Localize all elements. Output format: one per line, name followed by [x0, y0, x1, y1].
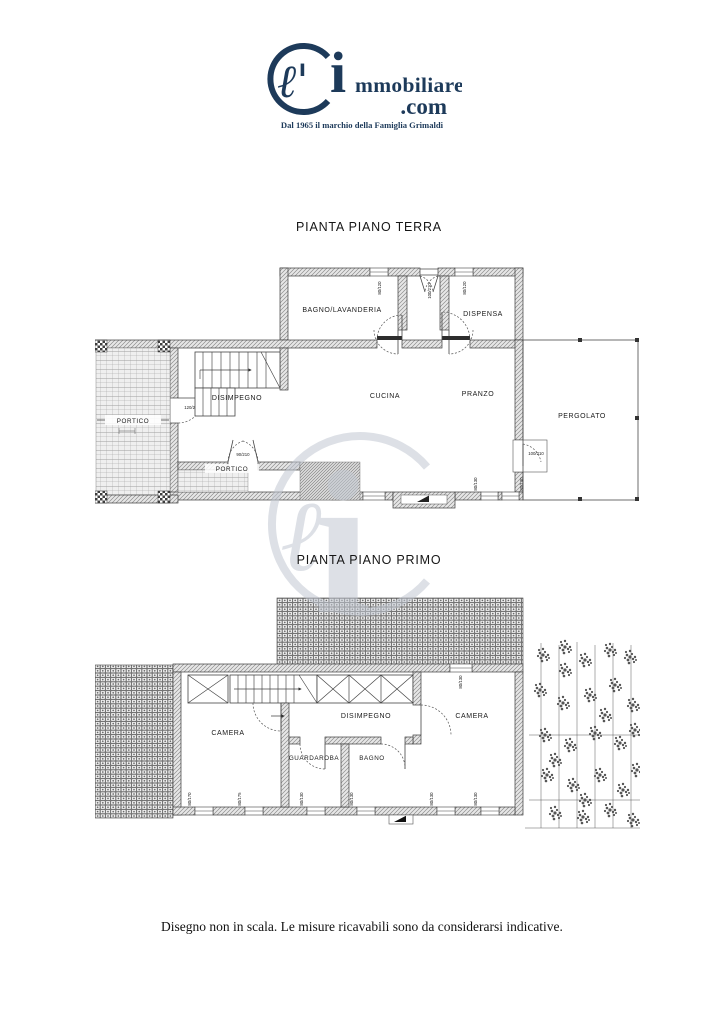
room-label-portico-bottom: PORTICO [216, 466, 248, 473]
room-label-camera-left: CAMERA [211, 730, 244, 737]
window [370, 268, 388, 276]
roof-top [277, 598, 523, 664]
measure-label: 80/130 [473, 792, 478, 806]
floorplan-document-page: ℓ' i mmobiliare .com Dal 1965 il marchio… [0, 0, 724, 1024]
roof-left [95, 665, 173, 818]
first-floor-title: PIANTA PIANO PRIMO [0, 553, 724, 567]
measure-label: 80/175 [237, 792, 242, 806]
window [307, 807, 325, 815]
entry-step-marker [389, 815, 413, 824]
pergolato-area: PERGOLATO [523, 338, 639, 501]
room-label-disimpegno-first: DISIMPEGNO [341, 713, 391, 720]
agency-logo: ℓ' i mmobiliare .com Dal 1965 il marchio… [262, 40, 462, 134]
room-label-cucina: CUCINA [370, 393, 400, 400]
measure-label: 80/130 [458, 675, 463, 689]
window [245, 807, 263, 815]
logo-tagline: Dal 1965 il marchio della Famiglia Grima… [281, 120, 444, 130]
room-label-dispensa: DISPENSA [463, 311, 503, 318]
room-label-bagno-lavanderia: BAGNO/LAVANDERIA [302, 307, 381, 314]
measure-label: 90/210 [236, 452, 250, 457]
staircase [230, 675, 317, 703]
room-label-disimpegno: DISIMPEGNO [212, 395, 262, 402]
ground-floor-plan: BAGNO/LAVANDERIA DISPENSA 80/120 100/210… [95, 248, 640, 512]
measure-label: 80/120 [462, 281, 467, 295]
measure-label: 80/130 [429, 792, 434, 806]
first-floor-body: 80/130 80/170 80/175 80/130 80/130 80/13… [173, 664, 523, 824]
measure-label: 80/130 [299, 792, 304, 806]
window [481, 807, 499, 815]
room-label-pergolato: PERGOLATO [558, 413, 606, 420]
room-label-pranzo: PRANZO [462, 391, 494, 398]
room-label-bagno: BAGNO [359, 755, 385, 762]
window [502, 492, 519, 500]
wardrobe-row [317, 675, 413, 703]
window [455, 268, 473, 276]
measure-label: 100/210 [427, 283, 432, 299]
window [481, 492, 498, 500]
window [363, 492, 385, 500]
measure-label: 80/130 [349, 792, 354, 806]
staircase [195, 352, 280, 416]
room-label-portico-left: PORTICO [117, 418, 149, 425]
window [195, 807, 213, 815]
camera-left-door [253, 703, 284, 731]
window [450, 664, 472, 672]
logo-big-i: i [330, 40, 346, 105]
wardrobe-box [188, 675, 228, 703]
measure-label: 80/170 [187, 792, 192, 806]
measure-label: 100/210 [528, 451, 544, 456]
first-floor-plan: 80/130 80/170 80/175 80/130 80/130 80/13… [95, 585, 640, 835]
logo-script-l: ℓ' [277, 54, 309, 108]
bottom-portico: 90/210 PORTICO [178, 440, 360, 500]
ground-floor-title: PIANTA PIANO TERRA [0, 220, 724, 234]
logo-tld: .com [400, 94, 447, 119]
room-label-camera-right: CAMERA [455, 713, 488, 720]
porch-step [393, 492, 455, 508]
window [357, 807, 375, 815]
pergola-vegetation [525, 640, 640, 828]
measure-label: 80/120 [377, 281, 382, 295]
room-label-guardaroba: GUARDAROBA [289, 755, 340, 762]
portico-left: PORTICO [95, 340, 178, 503]
window [437, 807, 455, 815]
pranzo-door [513, 440, 547, 472]
camera-right-door [421, 705, 451, 735]
measure-label: 80/130 [473, 477, 478, 491]
scale-disclaimer: Disegno non in scala. Le misure ricavabi… [0, 919, 724, 935]
